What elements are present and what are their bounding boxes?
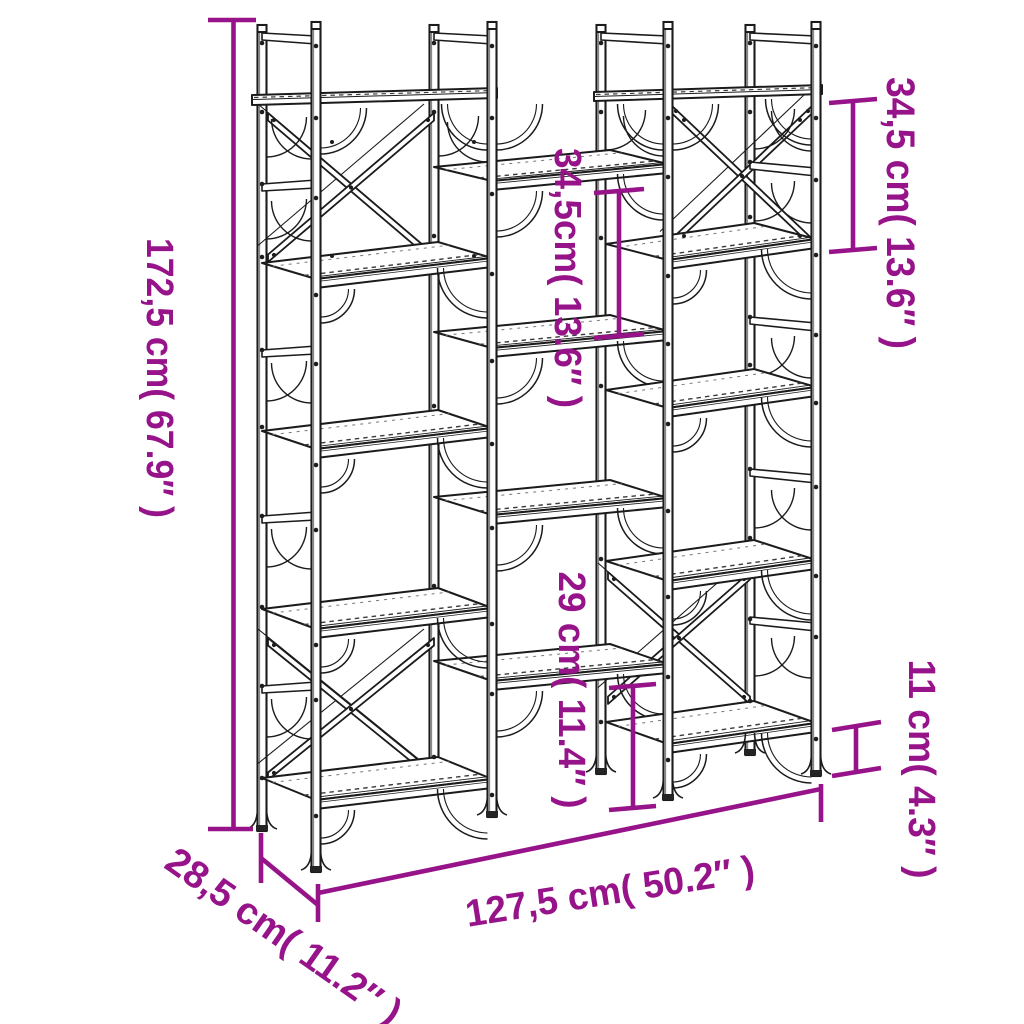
svg-text:172,5 cm( 67.9″ ): 172,5 cm( 67.9″ ) [138,238,180,518]
svg-text:11 cm( 4.3″ ): 11 cm( 4.3″ ) [900,660,942,879]
svg-text:29 cm( 11.4″ ): 29 cm( 11.4″ ) [550,572,592,809]
svg-text:34,5cm( 13.6″ ): 34,5cm( 13.6″ ) [546,148,588,408]
svg-text:34,5 cm( 13.6″ ): 34,5 cm( 13.6″ ) [878,77,922,349]
